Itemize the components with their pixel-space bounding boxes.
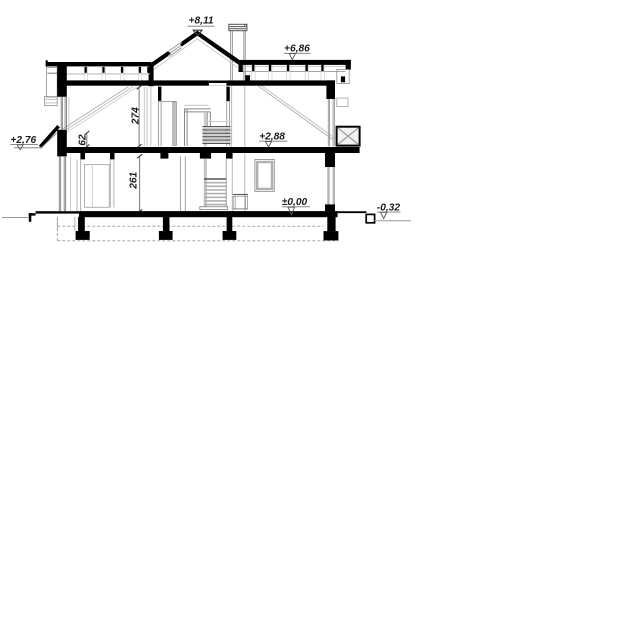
svg-text:274: 274 <box>131 107 142 125</box>
svg-text:261: 261 <box>129 171 140 189</box>
svg-text:+8,11: +8,11 <box>189 16 214 27</box>
svg-text:62: 62 <box>77 134 88 146</box>
